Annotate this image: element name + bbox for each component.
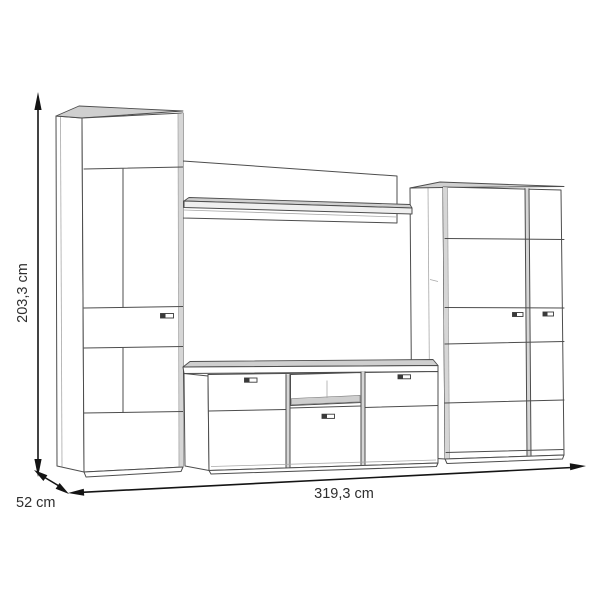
wall-panel-and-shelf [183, 161, 412, 223]
left-cabinet [56, 106, 183, 477]
right-cabinet-drawer-handle-right [543, 312, 554, 316]
arrowhead-up-icon [34, 92, 41, 110]
lowboard-right-drawer-handle [398, 375, 411, 379]
width-dimension-label: 319,3 cm [314, 486, 374, 502]
left-cabinet-drawer-handle [161, 314, 174, 319]
arrowhead-left-icon [68, 489, 84, 496]
tv-lowboard [183, 360, 438, 475]
dimension-diagram: 203,3 cm 52 cm 319,3 cm [0, 0, 600, 600]
lowboard-center-drawer-handle [322, 414, 335, 418]
depth-dimension-label: 52 cm [16, 495, 56, 511]
lowboard-left-drawer-handle [245, 378, 258, 382]
depth-dimension: 52 cm [16, 470, 69, 511]
right-cabinet-drawer-handle-left [513, 313, 524, 317]
wall-unit-line-drawing: 203,3 cm 52 cm 319,3 cm [0, 0, 600, 600]
height-dimension-label: 203,3 cm [15, 263, 31, 323]
arrowhead-right-icon [570, 463, 586, 470]
height-dimension: 203,3 cm [15, 92, 42, 477]
open-niche [291, 373, 362, 406]
arrowhead-upleft-icon [34, 470, 47, 481]
